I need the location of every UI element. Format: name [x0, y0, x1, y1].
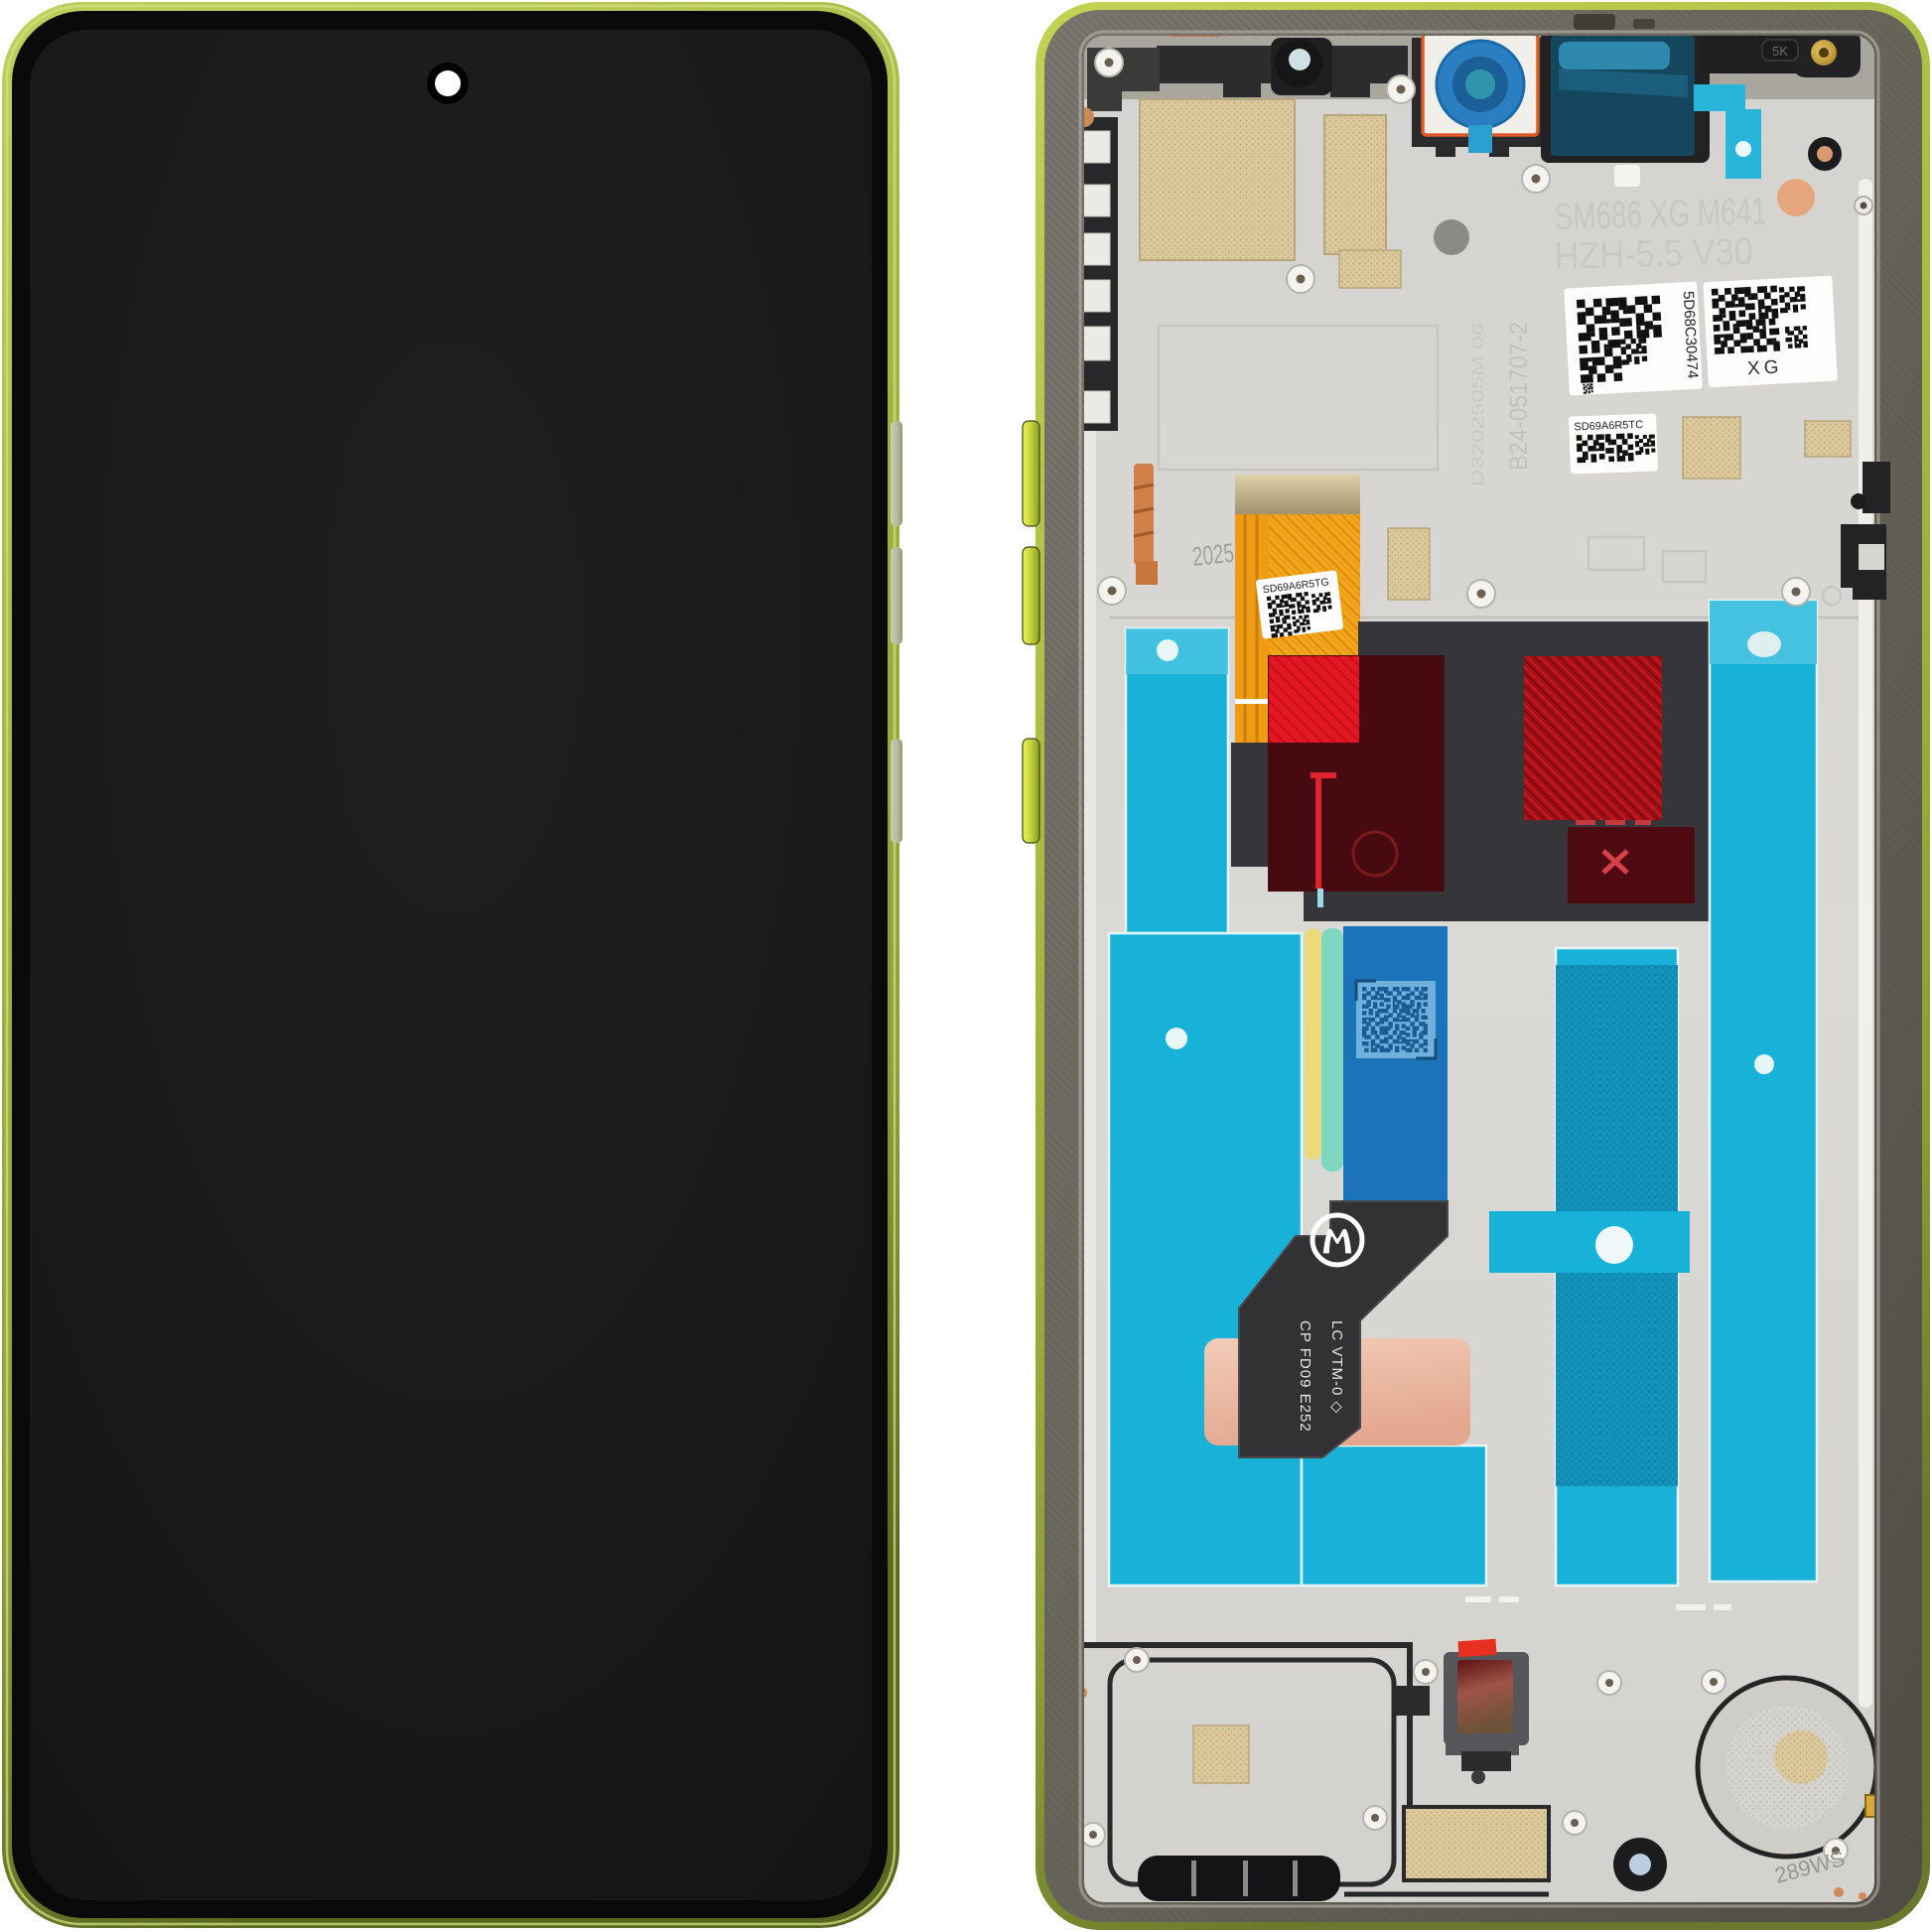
svg-text:D3202505M 06: D3202505M 06	[1468, 323, 1487, 486]
svg-text:XG: XG	[1746, 356, 1783, 379]
svg-text:HZH-5.5 V30: HZH-5.5 V30	[1554, 231, 1753, 278]
svg-text:5K: 5K	[1772, 44, 1788, 59]
svg-text:2025: 2025	[1190, 538, 1235, 572]
svg-text:B24-051707-2: B24-051707-2	[1505, 322, 1533, 471]
svg-text:SD69A6R5TC: SD69A6R5TC	[1574, 419, 1643, 433]
svg-text:LC VTM-0 ◇: LC VTM-0 ◇	[1328, 1320, 1345, 1414]
svg-text:CP FD09 E252: CP FD09 E252	[1297, 1320, 1313, 1433]
